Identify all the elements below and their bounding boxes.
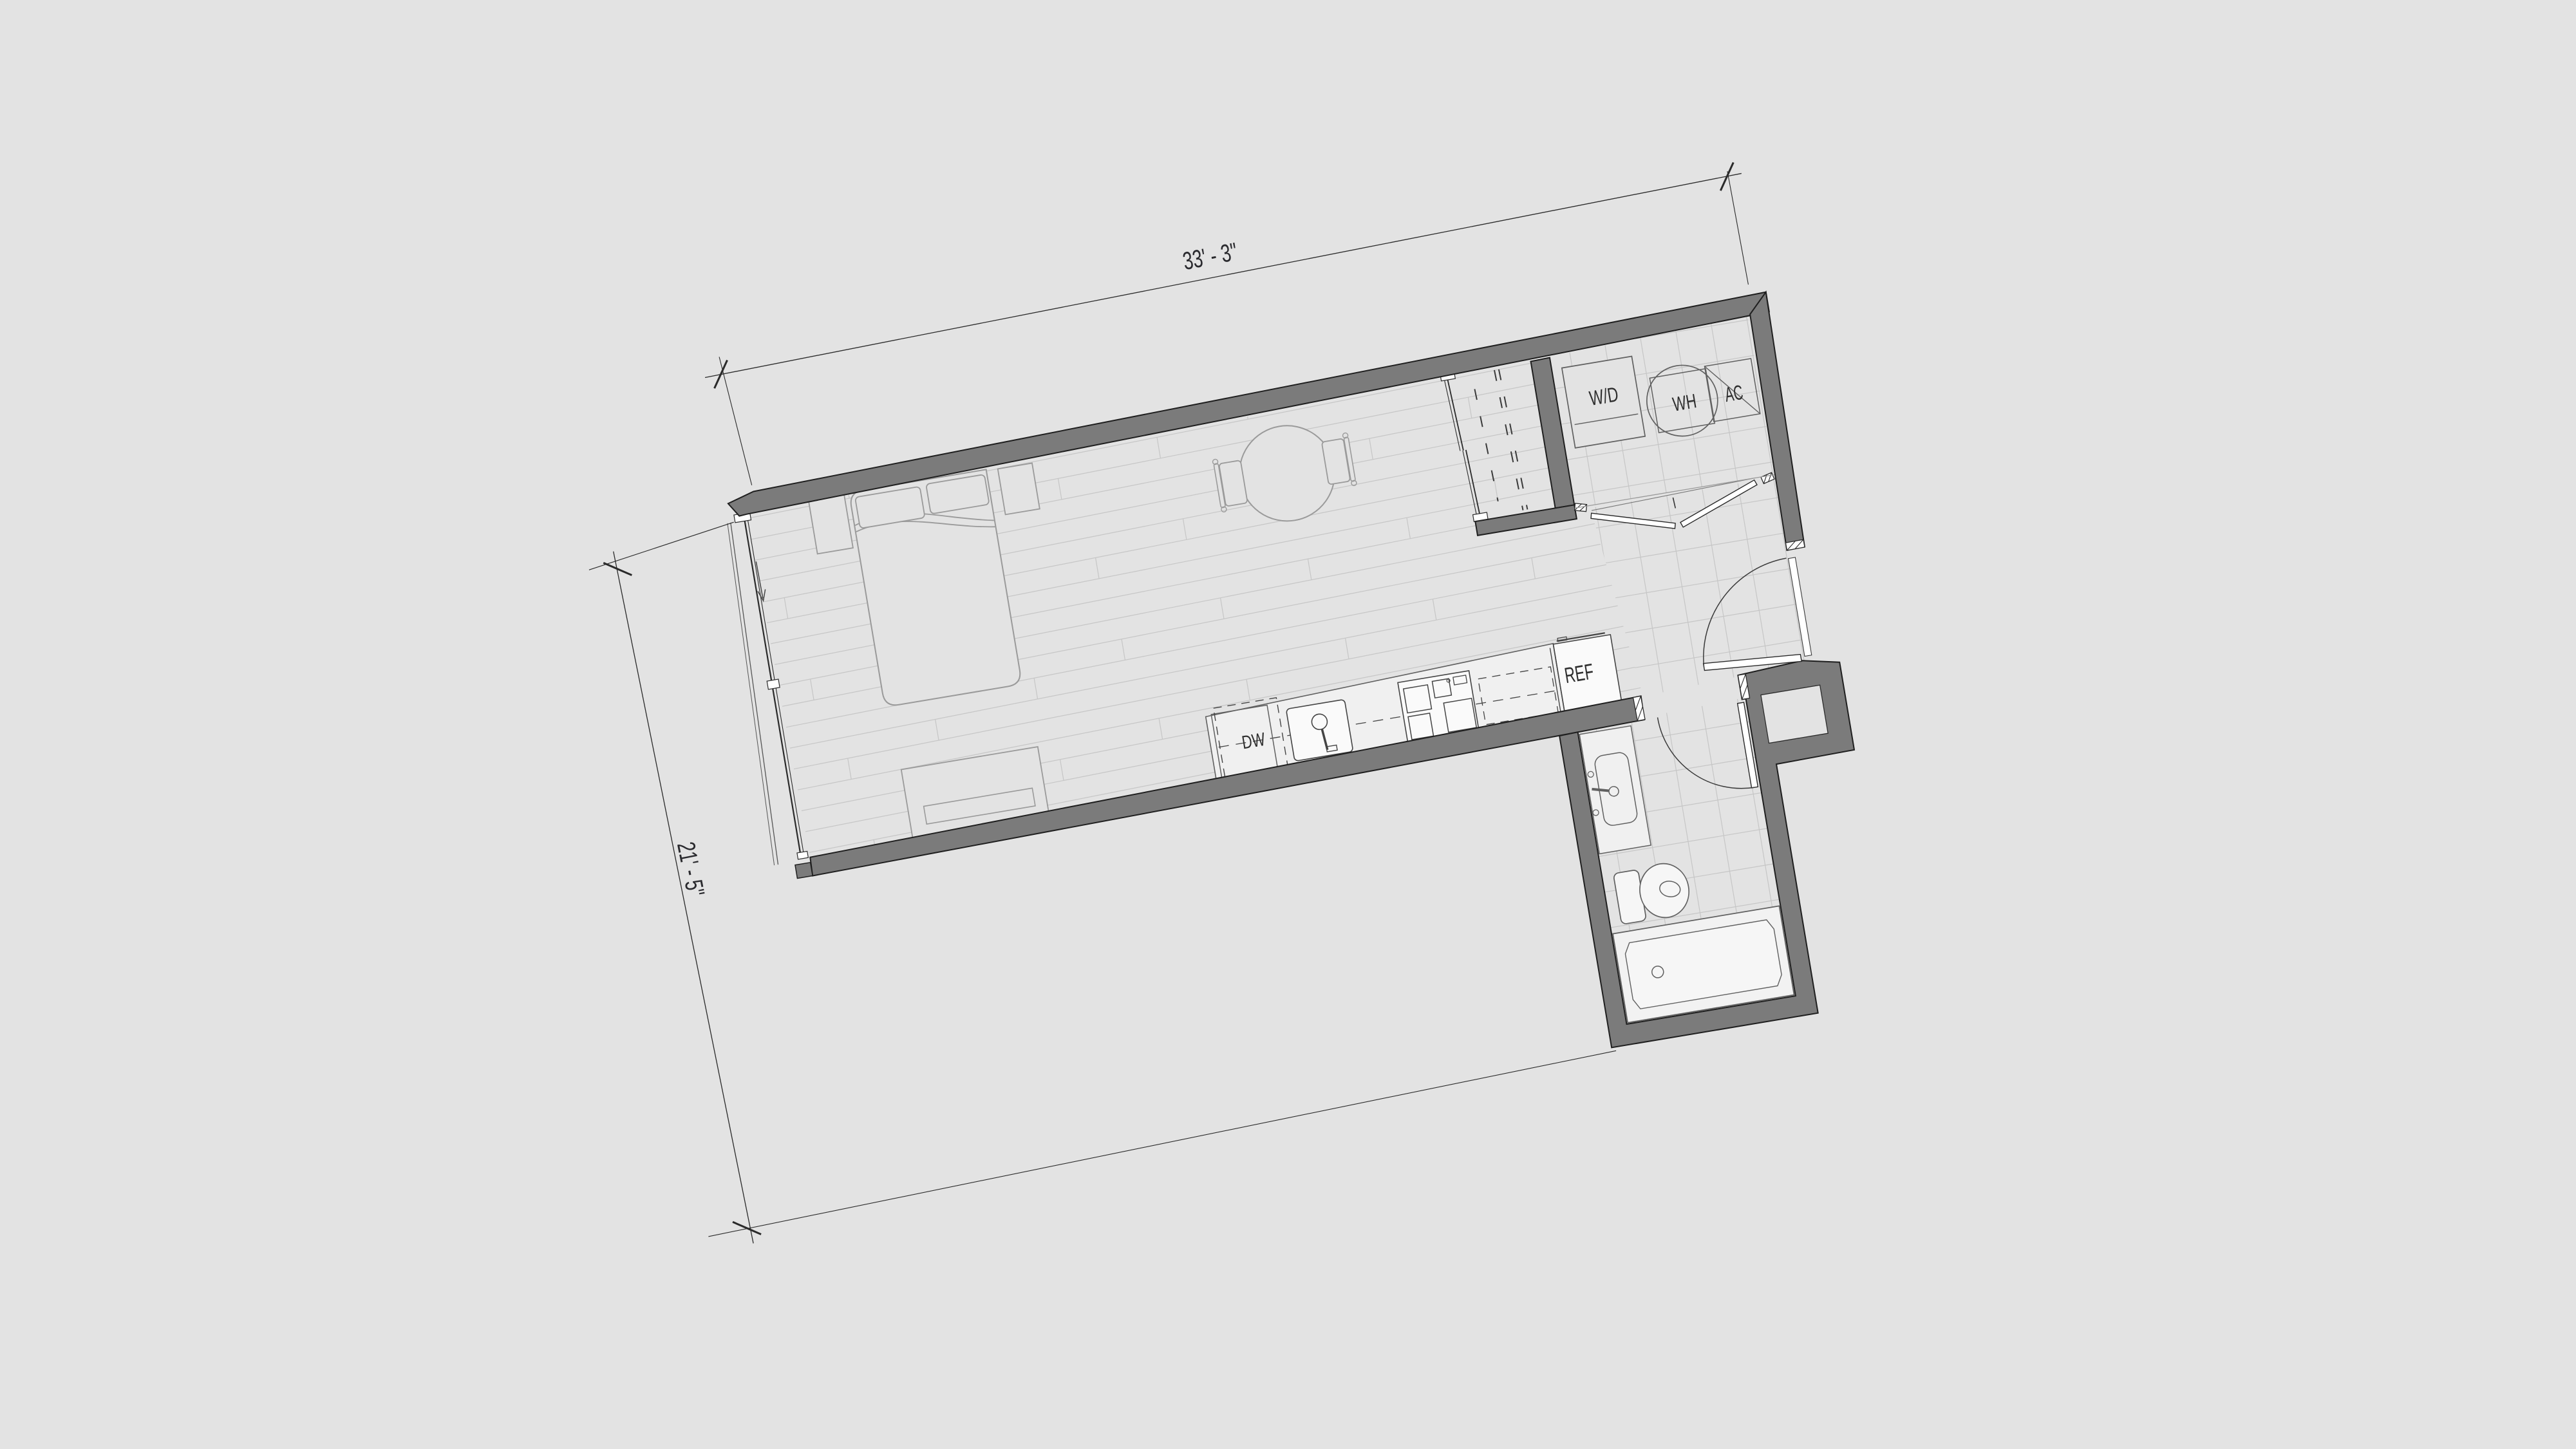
svg-text:W/D: W/D — [1588, 382, 1620, 410]
svg-text:DW: DW — [1241, 729, 1267, 754]
svg-text:AC: AC — [1723, 380, 1745, 406]
svg-text:REF: REF — [1563, 659, 1595, 688]
svg-text:WH: WH — [1671, 389, 1698, 416]
